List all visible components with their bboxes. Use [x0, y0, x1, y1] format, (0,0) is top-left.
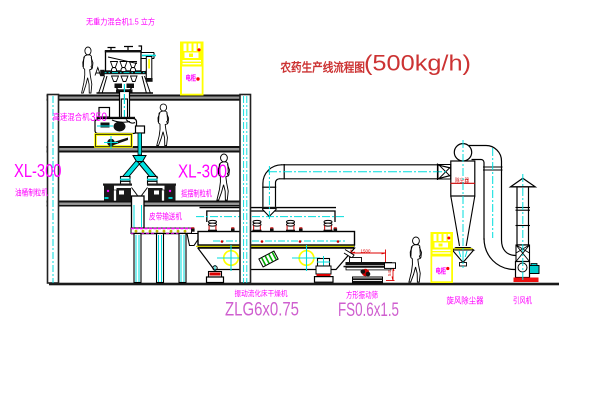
svg-text:引风机: 引风机: [513, 295, 532, 306]
svg-text:XL-300: XL-300: [14, 160, 62, 181]
svg-text:高速混合机: 高速混合机: [53, 112, 91, 122]
svg-text:(500kg/h): (500kg/h): [364, 51, 471, 76]
svg-text:方形振动筛: 方形振动筛: [346, 290, 378, 300]
svg-text:皮带输送机: 皮带输送机: [149, 212, 182, 222]
svg-text:农药生产线流程图: 农药生产线流程图: [280, 61, 366, 75]
svg-text:除尘器: 除尘器: [455, 177, 469, 184]
svg-text:摇摆制粒机: 摇摆制粒机: [181, 188, 212, 199]
svg-text:电柜: 电柜: [186, 73, 197, 83]
svg-text:电柜: 电柜: [436, 266, 447, 276]
svg-text:1500: 1500: [361, 249, 372, 254]
svg-text:ZLG6x0.75: ZLG6x0.75: [225, 299, 299, 321]
svg-text:FS0.6x1.5: FS0.6x1.5: [338, 300, 399, 321]
svg-text:旋风除尘器: 旋风除尘器: [447, 295, 484, 306]
svg-text:油桶制粒机: 油桶制粒机: [15, 187, 48, 198]
svg-text:振动流化床干燥机: 振动流化床干燥机: [235, 288, 288, 298]
svg-text:无重力混合机1.5 立方: 无重力混合机1.5 立方: [86, 17, 155, 27]
svg-text:350: 350: [90, 112, 107, 124]
svg-text:XL-300: XL-300: [178, 161, 227, 182]
